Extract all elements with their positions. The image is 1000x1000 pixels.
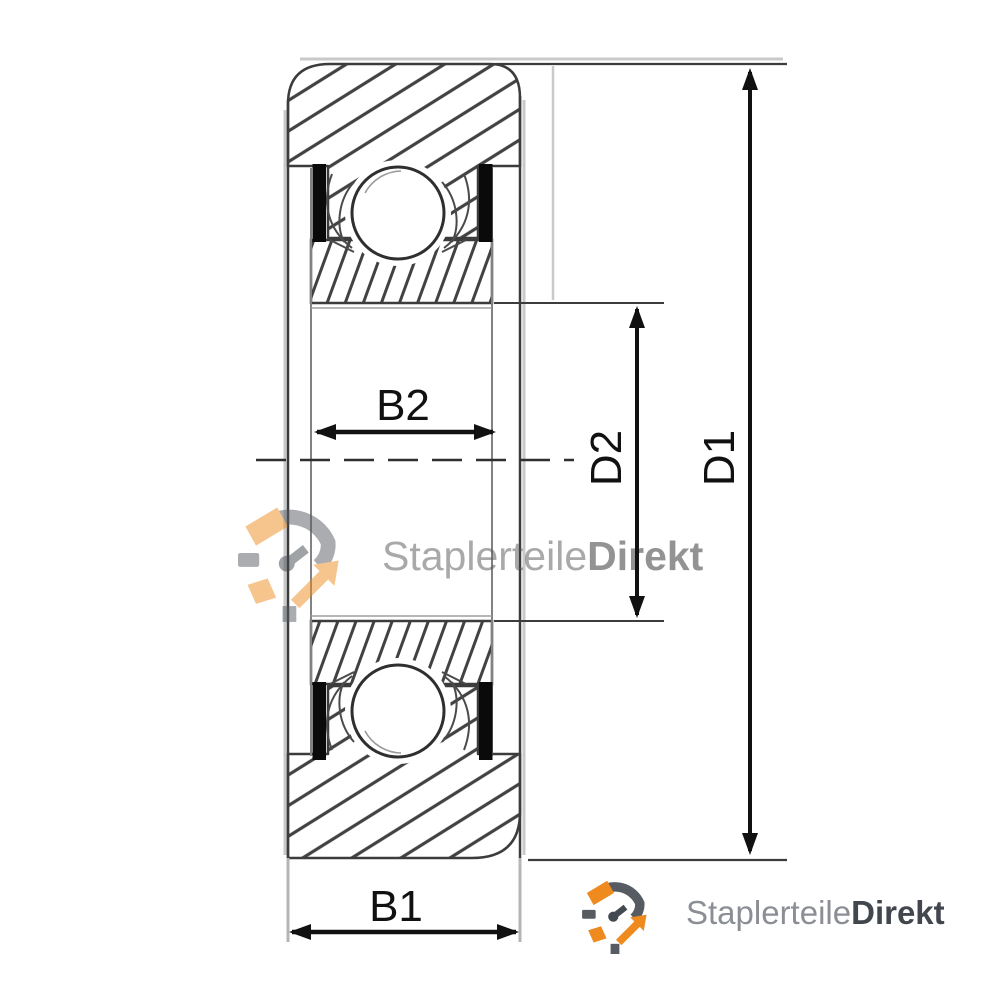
dimension-b2: B2 — [314, 381, 496, 440]
watermark-brand-text: StaplerteileDirekt — [382, 533, 704, 579]
arrowhead-right-icon — [497, 924, 519, 940]
watermark-brand-regular: Staplerteile — [382, 533, 587, 579]
circular-arrows-logo-icon — [582, 881, 646, 954]
bearing-drawing — [256, 59, 787, 942]
dimension-d1: D1 — [695, 68, 758, 855]
bearing-diagram: StaplerteileDirekt B2 B1 D2 — [0, 0, 1000, 1000]
arrowhead-down-icon — [742, 833, 758, 855]
arrowhead-left-icon — [314, 424, 336, 440]
dimension-label-b1: B1 — [369, 882, 423, 931]
dimension-label-b2: B2 — [376, 381, 430, 430]
footer-brand-regular: Staplerteile — [686, 894, 851, 931]
dimension-b1: B1 — [289, 882, 519, 940]
footer-brand-bold: Direkt — [851, 894, 945, 931]
arrowhead-down-icon — [629, 596, 645, 618]
footer-logo: StaplerteileDirekt — [582, 881, 945, 954]
arrowhead-up-icon — [629, 306, 645, 328]
dimension-label-d2: D2 — [582, 430, 631, 486]
arrowhead-up-icon — [742, 68, 758, 90]
arrowhead-left-icon — [289, 924, 311, 940]
dimension-label-d1: D1 — [695, 430, 744, 486]
watermark-brand-bold: Direkt — [587, 533, 704, 579]
footer-brand-text: StaplerteileDirekt — [686, 894, 945, 931]
technical-drawing-page: StaplerteileDirekt B2 B1 D2 — [0, 0, 1000, 1000]
